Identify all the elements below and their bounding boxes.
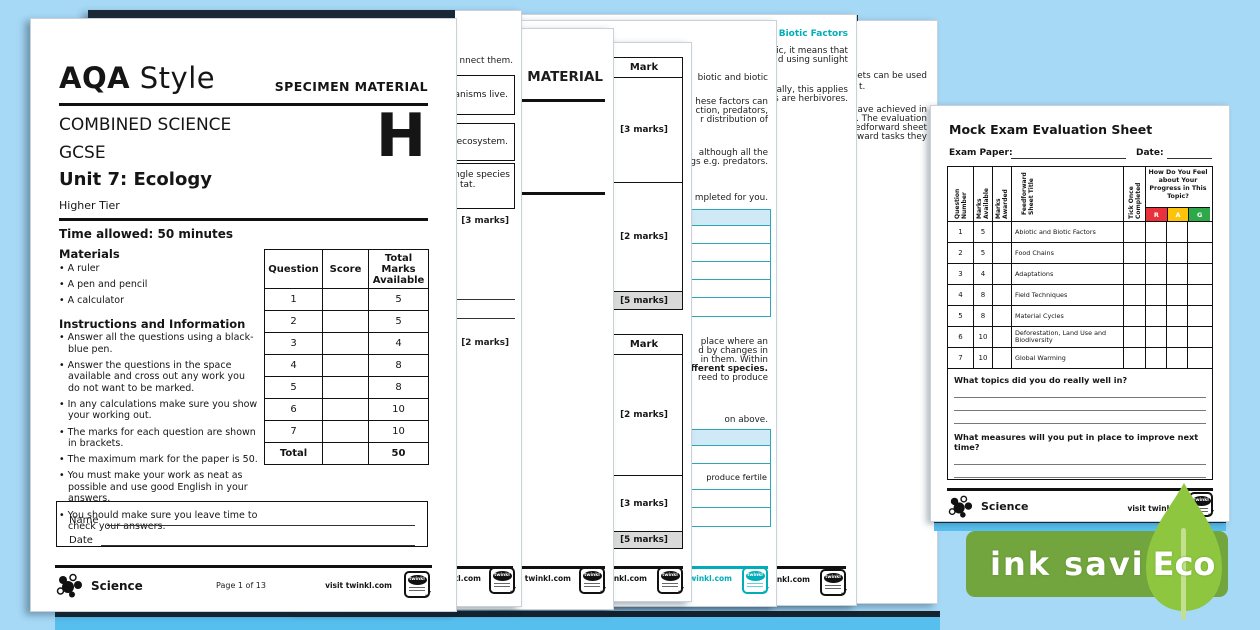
instructions-item: The marks for each question are shown in… bbox=[59, 427, 259, 450]
table-row: 34 bbox=[265, 332, 428, 354]
pencil-check-icon: ✓ bbox=[509, 584, 518, 597]
name-field-line bbox=[107, 513, 415, 526]
page6-text-fragment: s are herbivores. bbox=[774, 94, 848, 104]
page5-text-fragment: r distribution of bbox=[700, 115, 768, 125]
table-row: 58 bbox=[265, 376, 428, 398]
feedforward-title-cell: Food Chains bbox=[1012, 243, 1124, 263]
name-label: Name bbox=[69, 515, 99, 526]
stack-bottom-band bbox=[55, 617, 940, 630]
question-number-cell: 2 bbox=[948, 243, 974, 263]
rag-g-cell bbox=[1188, 348, 1210, 368]
instructions-item: The maximum mark for the paper is 50. bbox=[59, 454, 259, 466]
tick-cell bbox=[1124, 264, 1146, 284]
marks-awarded-cell bbox=[993, 243, 1012, 263]
column-header-marks-available: Marks Available bbox=[974, 167, 993, 221]
page5-text-fragment: biotic and biotic bbox=[698, 73, 768, 83]
badge-line bbox=[747, 583, 763, 584]
answer-table-header bbox=[690, 210, 770, 226]
tick-cell bbox=[1124, 285, 1146, 305]
rag-g-cell bbox=[1188, 264, 1210, 284]
question-number-cell: 6 bbox=[265, 399, 322, 420]
mark-column-table: Mark [2 marks] [3 marks] [5 marks] bbox=[605, 334, 683, 549]
rotated-header-text: Question Number bbox=[953, 169, 967, 219]
badge-line bbox=[747, 586, 763, 587]
answer-table-row bbox=[690, 244, 770, 262]
column-header-rag: How Do You Feel about Your Progress in T… bbox=[1146, 167, 1210, 221]
tick-cell bbox=[1124, 327, 1146, 347]
feedforward-title-cell: Abiotic and Biotic Factors bbox=[1012, 222, 1124, 242]
instructions-item: You must make your work as neat as possi… bbox=[59, 470, 259, 505]
marks-cell: [3 marks] bbox=[606, 78, 682, 183]
instructions-heading: Instructions and Information bbox=[59, 317, 245, 331]
rag-g-cell bbox=[1188, 243, 1210, 263]
marks-available-cell: 8 bbox=[368, 377, 428, 398]
eval-date-field-line bbox=[1167, 148, 1212, 159]
eco-label: Eco bbox=[1146, 545, 1222, 583]
evaluation-table: Question Number Marks Available Marks Aw… bbox=[947, 166, 1213, 480]
date-field-line bbox=[101, 533, 415, 546]
question-number-cell: 2 bbox=[265, 311, 322, 332]
name-date-box: Name Date bbox=[56, 501, 428, 547]
answer-line bbox=[954, 385, 1206, 398]
footer-brand-label: Science bbox=[91, 579, 143, 593]
marks-label: [2 marks] bbox=[461, 338, 509, 348]
pencil-check-icon: ✓ bbox=[677, 584, 686, 597]
tick-cell bbox=[1124, 222, 1146, 242]
rag-r-cell bbox=[1146, 348, 1167, 368]
page5-text-fragment: mpleted for you. bbox=[695, 193, 768, 203]
page5-text-fragment: reed to produce bbox=[698, 373, 768, 383]
rag-a-cell bbox=[1167, 327, 1188, 347]
eval-sheet-title: Mock Exam Evaluation Sheet bbox=[949, 122, 1152, 137]
column-header: Score bbox=[322, 250, 368, 288]
question-number-cell: 4 bbox=[265, 355, 322, 376]
marks-available-cell: 5 bbox=[974, 243, 993, 263]
answer-table-row bbox=[690, 298, 770, 316]
question-number-cell: 7 bbox=[948, 348, 974, 368]
question-number-cell: 5 bbox=[948, 306, 974, 326]
twinkl-logo-badge: twinkl ✓ bbox=[820, 569, 846, 596]
marks-cell: [2 marks] bbox=[606, 355, 682, 476]
rag-r-cell bbox=[1146, 222, 1167, 242]
eval-date-label: Date: bbox=[1136, 148, 1164, 158]
answer-table-row bbox=[690, 508, 770, 526]
answer-table-row bbox=[690, 490, 770, 508]
marks-available-cell: 5 bbox=[368, 289, 428, 310]
visit-link-text: visit twinkl.com bbox=[325, 581, 392, 590]
question-number-cell: 1 bbox=[948, 222, 974, 242]
evaluation-table-row: 58Material Cycles bbox=[948, 306, 1212, 327]
course-title-line: COMBINED SCIENCE bbox=[59, 115, 231, 135]
score-cell bbox=[322, 421, 368, 442]
answer-table-row: produce fertile bbox=[690, 464, 770, 490]
materials-item: A calculator bbox=[59, 295, 259, 307]
twinkl-logo-icon: twinkl bbox=[824, 573, 843, 583]
rag-a-cell bbox=[1167, 306, 1188, 326]
feedforward-title-cell: Adaptations bbox=[1012, 264, 1124, 284]
column-header-feedforward-title: Feedforward Sheet Title bbox=[1012, 167, 1124, 221]
marks-label: [3 marks] bbox=[461, 216, 509, 226]
tier-label: Higher Tier bbox=[59, 199, 120, 212]
badge-line bbox=[409, 590, 425, 591]
rag-g-cell bbox=[1188, 285, 1210, 305]
marks-available-cell: 5 bbox=[368, 311, 428, 332]
tick-cell bbox=[1124, 243, 1146, 263]
table-row: 710 bbox=[265, 420, 428, 442]
badge-line bbox=[409, 587, 425, 588]
exam-paper-cover-page: AQA Style SPECIMEN MATERIAL COMBINED SCI… bbox=[30, 18, 457, 612]
rag-amber-cell: A bbox=[1168, 208, 1190, 221]
question-number-cell: 3 bbox=[948, 264, 974, 284]
twinkl-logo-badge: twinkl ✓ bbox=[489, 567, 515, 594]
science-molecule-icon bbox=[55, 572, 85, 599]
score-cell bbox=[322, 311, 368, 332]
time-allowed-label: Time allowed: 50 minutes bbox=[59, 227, 233, 241]
table-row: 25 bbox=[265, 310, 428, 332]
rag-question-text: How Do You Feel about Your Progress in T… bbox=[1146, 167, 1210, 207]
brand-bold: AQA bbox=[59, 61, 130, 95]
pencil-check-icon: ✓ bbox=[762, 584, 771, 597]
section-rule bbox=[59, 218, 428, 221]
twinkl-logo-icon: twinkl bbox=[661, 571, 680, 581]
question-number-cell: 3 bbox=[265, 333, 322, 354]
pencil-check-icon: ✓ bbox=[424, 588, 433, 601]
answer-table-row bbox=[690, 226, 770, 244]
column-header-question-number: Question Number bbox=[948, 167, 974, 221]
answer-table-row bbox=[690, 262, 770, 280]
answer-table: produce fertile bbox=[689, 429, 771, 527]
worksheet-preview: eets can be used t. have achieved in s. … bbox=[0, 0, 1260, 630]
marks-awarded-cell bbox=[993, 264, 1012, 284]
marks-total-cell: [5 marks] bbox=[606, 292, 682, 309]
marks-available-cell: 4 bbox=[974, 264, 993, 284]
badge-line bbox=[494, 586, 510, 587]
score-cell bbox=[322, 355, 368, 376]
brand-regular: Style bbox=[140, 61, 215, 95]
twinkl-logo-badge: twinkl ✓ bbox=[742, 567, 768, 594]
column-header-marks-awarded: Marks Awarded bbox=[993, 167, 1012, 221]
score-cell bbox=[322, 333, 368, 354]
rag-green-cell: G bbox=[1189, 208, 1210, 221]
pencil-check-icon: ✓ bbox=[599, 584, 608, 597]
evaluation-table-header: Question Number Marks Available Marks Aw… bbox=[948, 167, 1212, 222]
rag-g-cell bbox=[1188, 327, 1210, 347]
twinkl-logo-badge: twinkl ✓ bbox=[579, 567, 605, 594]
twinkl-logo-icon: twinkl bbox=[493, 571, 512, 581]
rag-r-cell bbox=[1146, 285, 1167, 305]
badge-line bbox=[584, 586, 600, 587]
feedforward-title-cell: Deforestation, Land Use and Biodiversity bbox=[1012, 327, 1124, 347]
unit-title: Unit 7: Ecology bbox=[59, 169, 212, 190]
marks-available-cell: 10 bbox=[368, 399, 428, 420]
table-header-row: Question Score Total Marks Available bbox=[265, 250, 428, 288]
marks-awarded-cell bbox=[993, 222, 1012, 242]
rotated-header-text: Marks Awarded bbox=[995, 169, 1009, 219]
answer-table-row bbox=[690, 280, 770, 298]
question-number-cell: 1 bbox=[265, 289, 322, 310]
exam-board-brand: AQA Style bbox=[59, 61, 215, 95]
marks-available-cell: 8 bbox=[368, 355, 428, 376]
question-number-cell: 4 bbox=[948, 285, 974, 305]
marks-available-cell: 10 bbox=[974, 327, 993, 347]
higher-tier-letter: H bbox=[366, 101, 436, 171]
score-cell bbox=[322, 289, 368, 310]
table-row: 48 bbox=[265, 354, 428, 376]
page2-text-fragment: nnect them. bbox=[460, 56, 513, 66]
answer-line bbox=[954, 398, 1206, 411]
rotated-header-text: Marks Available bbox=[976, 169, 990, 219]
exam-paper-field-line bbox=[1011, 148, 1126, 159]
badge-line bbox=[825, 585, 841, 586]
marks-awarded-cell bbox=[993, 348, 1012, 368]
page-number-label: Page 1 of 13 bbox=[216, 581, 266, 590]
instructions-item: Answer all the questions using a black-b… bbox=[59, 332, 259, 355]
marks-summary-table: Question Score Total Marks Available 15 … bbox=[264, 249, 429, 465]
reflection-question: What measures will you put in place to i… bbox=[954, 432, 1206, 452]
instructions-item: Answer the questions in the space availa… bbox=[59, 360, 259, 395]
marks-available-cell: 4 bbox=[368, 333, 428, 354]
marks-total-cell: [5 marks] bbox=[606, 532, 682, 548]
twinkl-logo-icon: twinkl bbox=[583, 571, 602, 581]
rag-g-cell bbox=[1188, 306, 1210, 326]
rag-r-cell bbox=[1146, 327, 1167, 347]
page3-specimen-fragment: MATERIAL bbox=[527, 69, 603, 85]
total-label-cell: Total bbox=[265, 443, 322, 464]
instructions-item: In any calculations make sure you show y… bbox=[59, 399, 259, 422]
science-molecule-icon bbox=[947, 494, 975, 519]
reflection-question: What topics did you do really well in? bbox=[954, 375, 1206, 385]
pencil-check-icon: ✓ bbox=[840, 586, 849, 599]
page5-text-fragment: on above. bbox=[724, 415, 768, 425]
marks-available-cell: 5 bbox=[974, 222, 993, 242]
footer-rule bbox=[55, 565, 432, 568]
twinkl-logo-icon: twinkl bbox=[408, 575, 427, 585]
materials-item: A ruler bbox=[59, 263, 259, 275]
badge-line bbox=[662, 586, 678, 587]
page6-text-fragment: d using sunlight bbox=[778, 55, 848, 65]
eval-footer-brand-label: Science bbox=[981, 500, 1029, 513]
exam-paper-label: Exam Paper: bbox=[949, 148, 1013, 158]
answer-line bbox=[954, 465, 1206, 478]
answer-line bbox=[954, 452, 1206, 465]
table-row: 610 bbox=[265, 398, 428, 420]
page5-text-fragment: gs e.g. predators. bbox=[690, 157, 768, 167]
answer-table-row bbox=[690, 446, 770, 464]
total-marks-cell: 50 bbox=[368, 443, 428, 464]
materials-list: A ruler A pen and pencil A calculator bbox=[59, 263, 259, 311]
badge-line bbox=[494, 583, 510, 584]
table-row: 15 bbox=[265, 288, 428, 310]
rag-a-cell bbox=[1167, 285, 1188, 305]
rag-r-cell bbox=[1146, 243, 1167, 263]
evaluation-table-row: 48Field Techniques bbox=[948, 285, 1212, 306]
badge-line bbox=[825, 588, 841, 589]
rag-g-cell bbox=[1188, 222, 1210, 242]
mock-exam-evaluation-sheet: Mock Exam Evaluation Sheet Exam Paper: D… bbox=[930, 105, 1230, 522]
twinkl-logo-badge: twinkl ✓ bbox=[657, 567, 683, 594]
page7-text-fragment: t. bbox=[859, 82, 865, 92]
tick-cell bbox=[1124, 306, 1146, 326]
page7-text-fragment: eets can be used bbox=[852, 71, 927, 81]
score-cell bbox=[322, 399, 368, 420]
rag-r-cell bbox=[1146, 306, 1167, 326]
marks-available-cell: 10 bbox=[974, 348, 993, 368]
answer-table-header bbox=[690, 430, 770, 446]
evaluation-table-row: 610Deforestation, Land Use and Biodivers… bbox=[948, 327, 1212, 348]
evaluation-table-row: 25Food Chains bbox=[948, 243, 1212, 264]
rag-a-cell bbox=[1167, 348, 1188, 368]
rag-a-cell bbox=[1167, 222, 1188, 242]
twinkl-logo-icon: twinkl bbox=[746, 571, 765, 581]
date-label: Date bbox=[69, 535, 93, 546]
reflection-questions-area: What topics did you do really well in? W… bbox=[948, 369, 1212, 495]
specimen-material-label: SPECIMEN MATERIAL bbox=[275, 79, 428, 94]
materials-heading: Materials bbox=[59, 247, 120, 261]
evaluation-table-row: 15Abiotic and Biotic Factors bbox=[948, 222, 1212, 243]
evaluation-table-row: 34Adaptations bbox=[948, 264, 1212, 285]
rag-a-cell bbox=[1167, 243, 1188, 263]
marks-awarded-cell bbox=[993, 327, 1012, 347]
badge-line bbox=[584, 583, 600, 584]
badge-line bbox=[662, 583, 678, 584]
feedforward-title-cell: Global Warming bbox=[1012, 348, 1124, 368]
table-total-row: Total50 bbox=[265, 442, 428, 464]
question-number-cell: 7 bbox=[265, 421, 322, 442]
tick-cell bbox=[1124, 348, 1146, 368]
column-header: Total Marks Available bbox=[368, 250, 428, 288]
marks-cell: [3 marks] bbox=[606, 476, 682, 532]
answer-line bbox=[954, 411, 1206, 424]
mark-column-header: Mark bbox=[606, 58, 682, 78]
mark-column-table: Mark [3 marks] [2 marks] [5 marks] bbox=[605, 57, 683, 310]
question-number-cell: 5 bbox=[265, 377, 322, 398]
evaluation-table-row: 710Global Warming bbox=[948, 348, 1212, 369]
marks-available-cell: 10 bbox=[368, 421, 428, 442]
column-header: Question bbox=[265, 250, 322, 288]
feedforward-title-cell: Field Techniques bbox=[1012, 285, 1124, 305]
rotated-header-text: Feedforward Sheet Title bbox=[1021, 173, 1035, 215]
page7-text-fragment: rward tasks they bbox=[853, 132, 927, 142]
rag-a-cell bbox=[1167, 264, 1188, 284]
score-cell bbox=[322, 377, 368, 398]
rag-letter-cells: R A G bbox=[1146, 207, 1210, 221]
mark-column-header: Mark bbox=[606, 335, 682, 355]
marks-available-cell: 8 bbox=[974, 285, 993, 305]
materials-item: A pen and pencil bbox=[59, 279, 259, 291]
rag-r-cell bbox=[1146, 264, 1167, 284]
marks-awarded-cell bbox=[993, 306, 1012, 326]
rag-red-cell: R bbox=[1146, 208, 1168, 221]
course-title-line: GCSE bbox=[59, 143, 106, 163]
total-score-cell bbox=[322, 443, 368, 464]
marks-cell: [2 marks] bbox=[606, 183, 682, 292]
question-number-cell: 6 bbox=[948, 327, 974, 347]
answer-table bbox=[689, 209, 771, 317]
marks-available-cell: 8 bbox=[974, 306, 993, 326]
marks-awarded-cell bbox=[993, 285, 1012, 305]
feedforward-title-cell: Material Cycles bbox=[1012, 306, 1124, 326]
twinkl-logo-badge: twinkl ✓ bbox=[404, 571, 430, 598]
rotated-header-text: Tick Once Completed bbox=[1127, 169, 1141, 219]
column-header-tick-once-completed: Tick Once Completed bbox=[1124, 167, 1146, 221]
